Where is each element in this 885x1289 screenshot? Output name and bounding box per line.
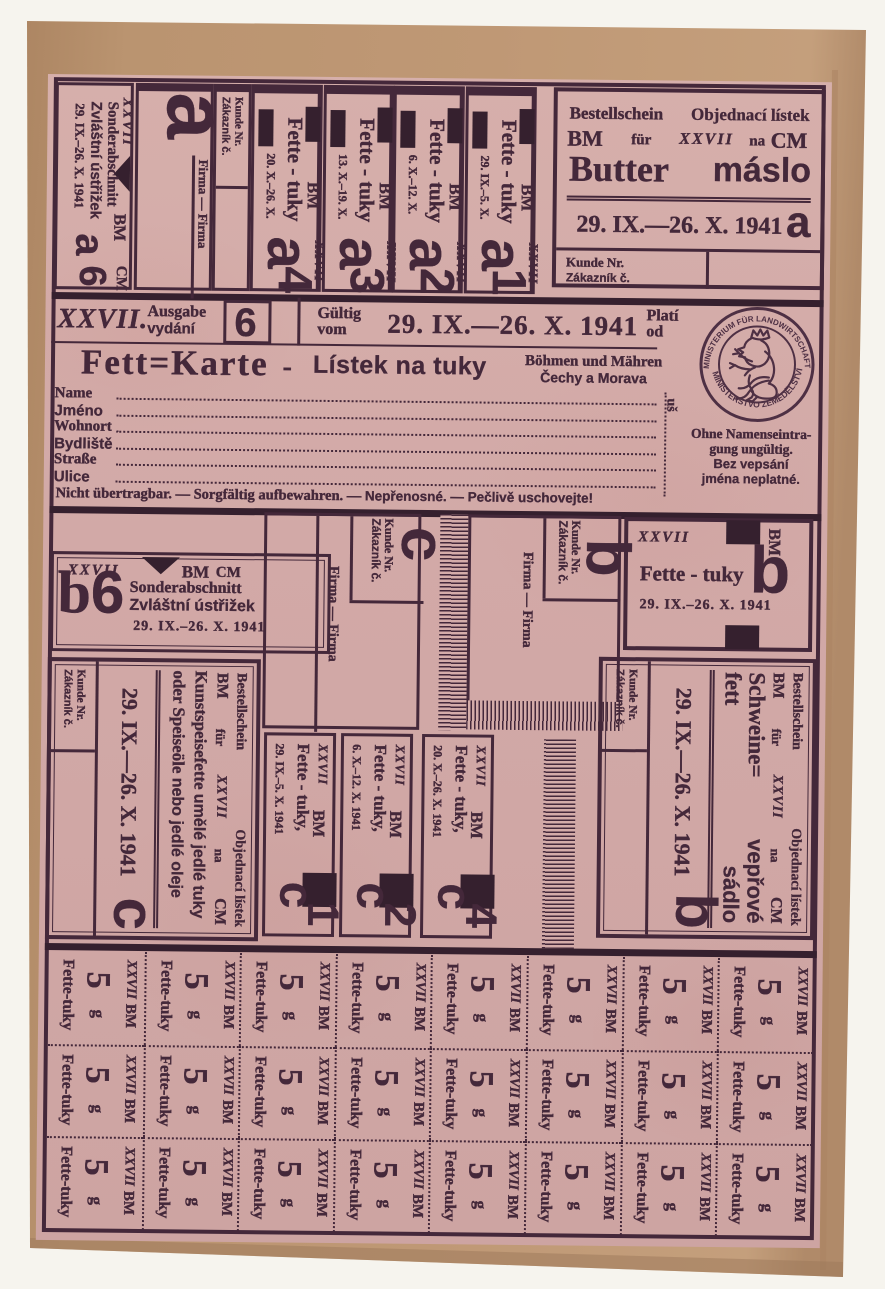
svg-text:MINISTERSTVO ZEMĚDĚLSTVÍ: MINISTERSTVO ZEMĚDĚLSTVÍ <box>710 366 805 410</box>
